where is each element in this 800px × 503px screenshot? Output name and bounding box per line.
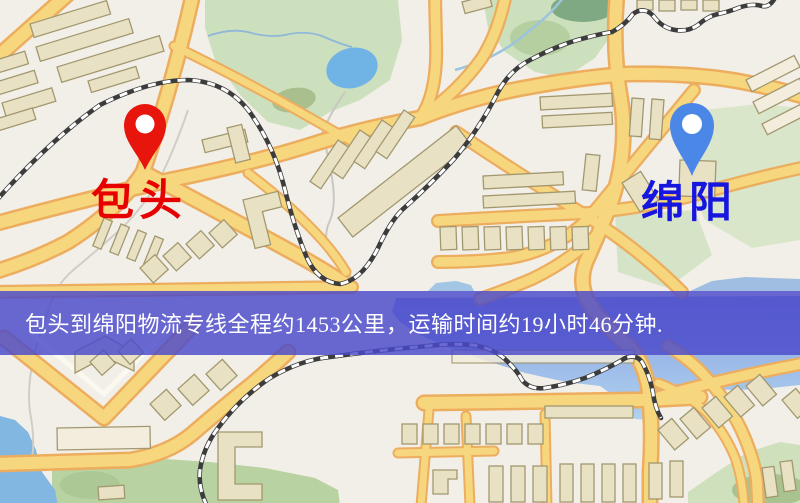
map-canvas [0,0,800,503]
route-info-text: 包头到绵阳物流专线全程约1453公里，运输时间约19小时46分钟. [25,307,663,339]
destination-pin-icon[interactable] [666,98,718,178]
destination-label: 绵阳 [641,182,737,225]
origin-pin-icon[interactable] [120,100,170,172]
origin-label: 包头 [91,180,187,223]
map-view: 包头到绵阳物流专线全程约1453公里，运输时间约19小时46分钟. 包头 绵阳 [0,0,800,503]
route-info-banner: 包头到绵阳物流专线全程约1453公里，运输时间约19小时46分钟. [0,291,800,355]
